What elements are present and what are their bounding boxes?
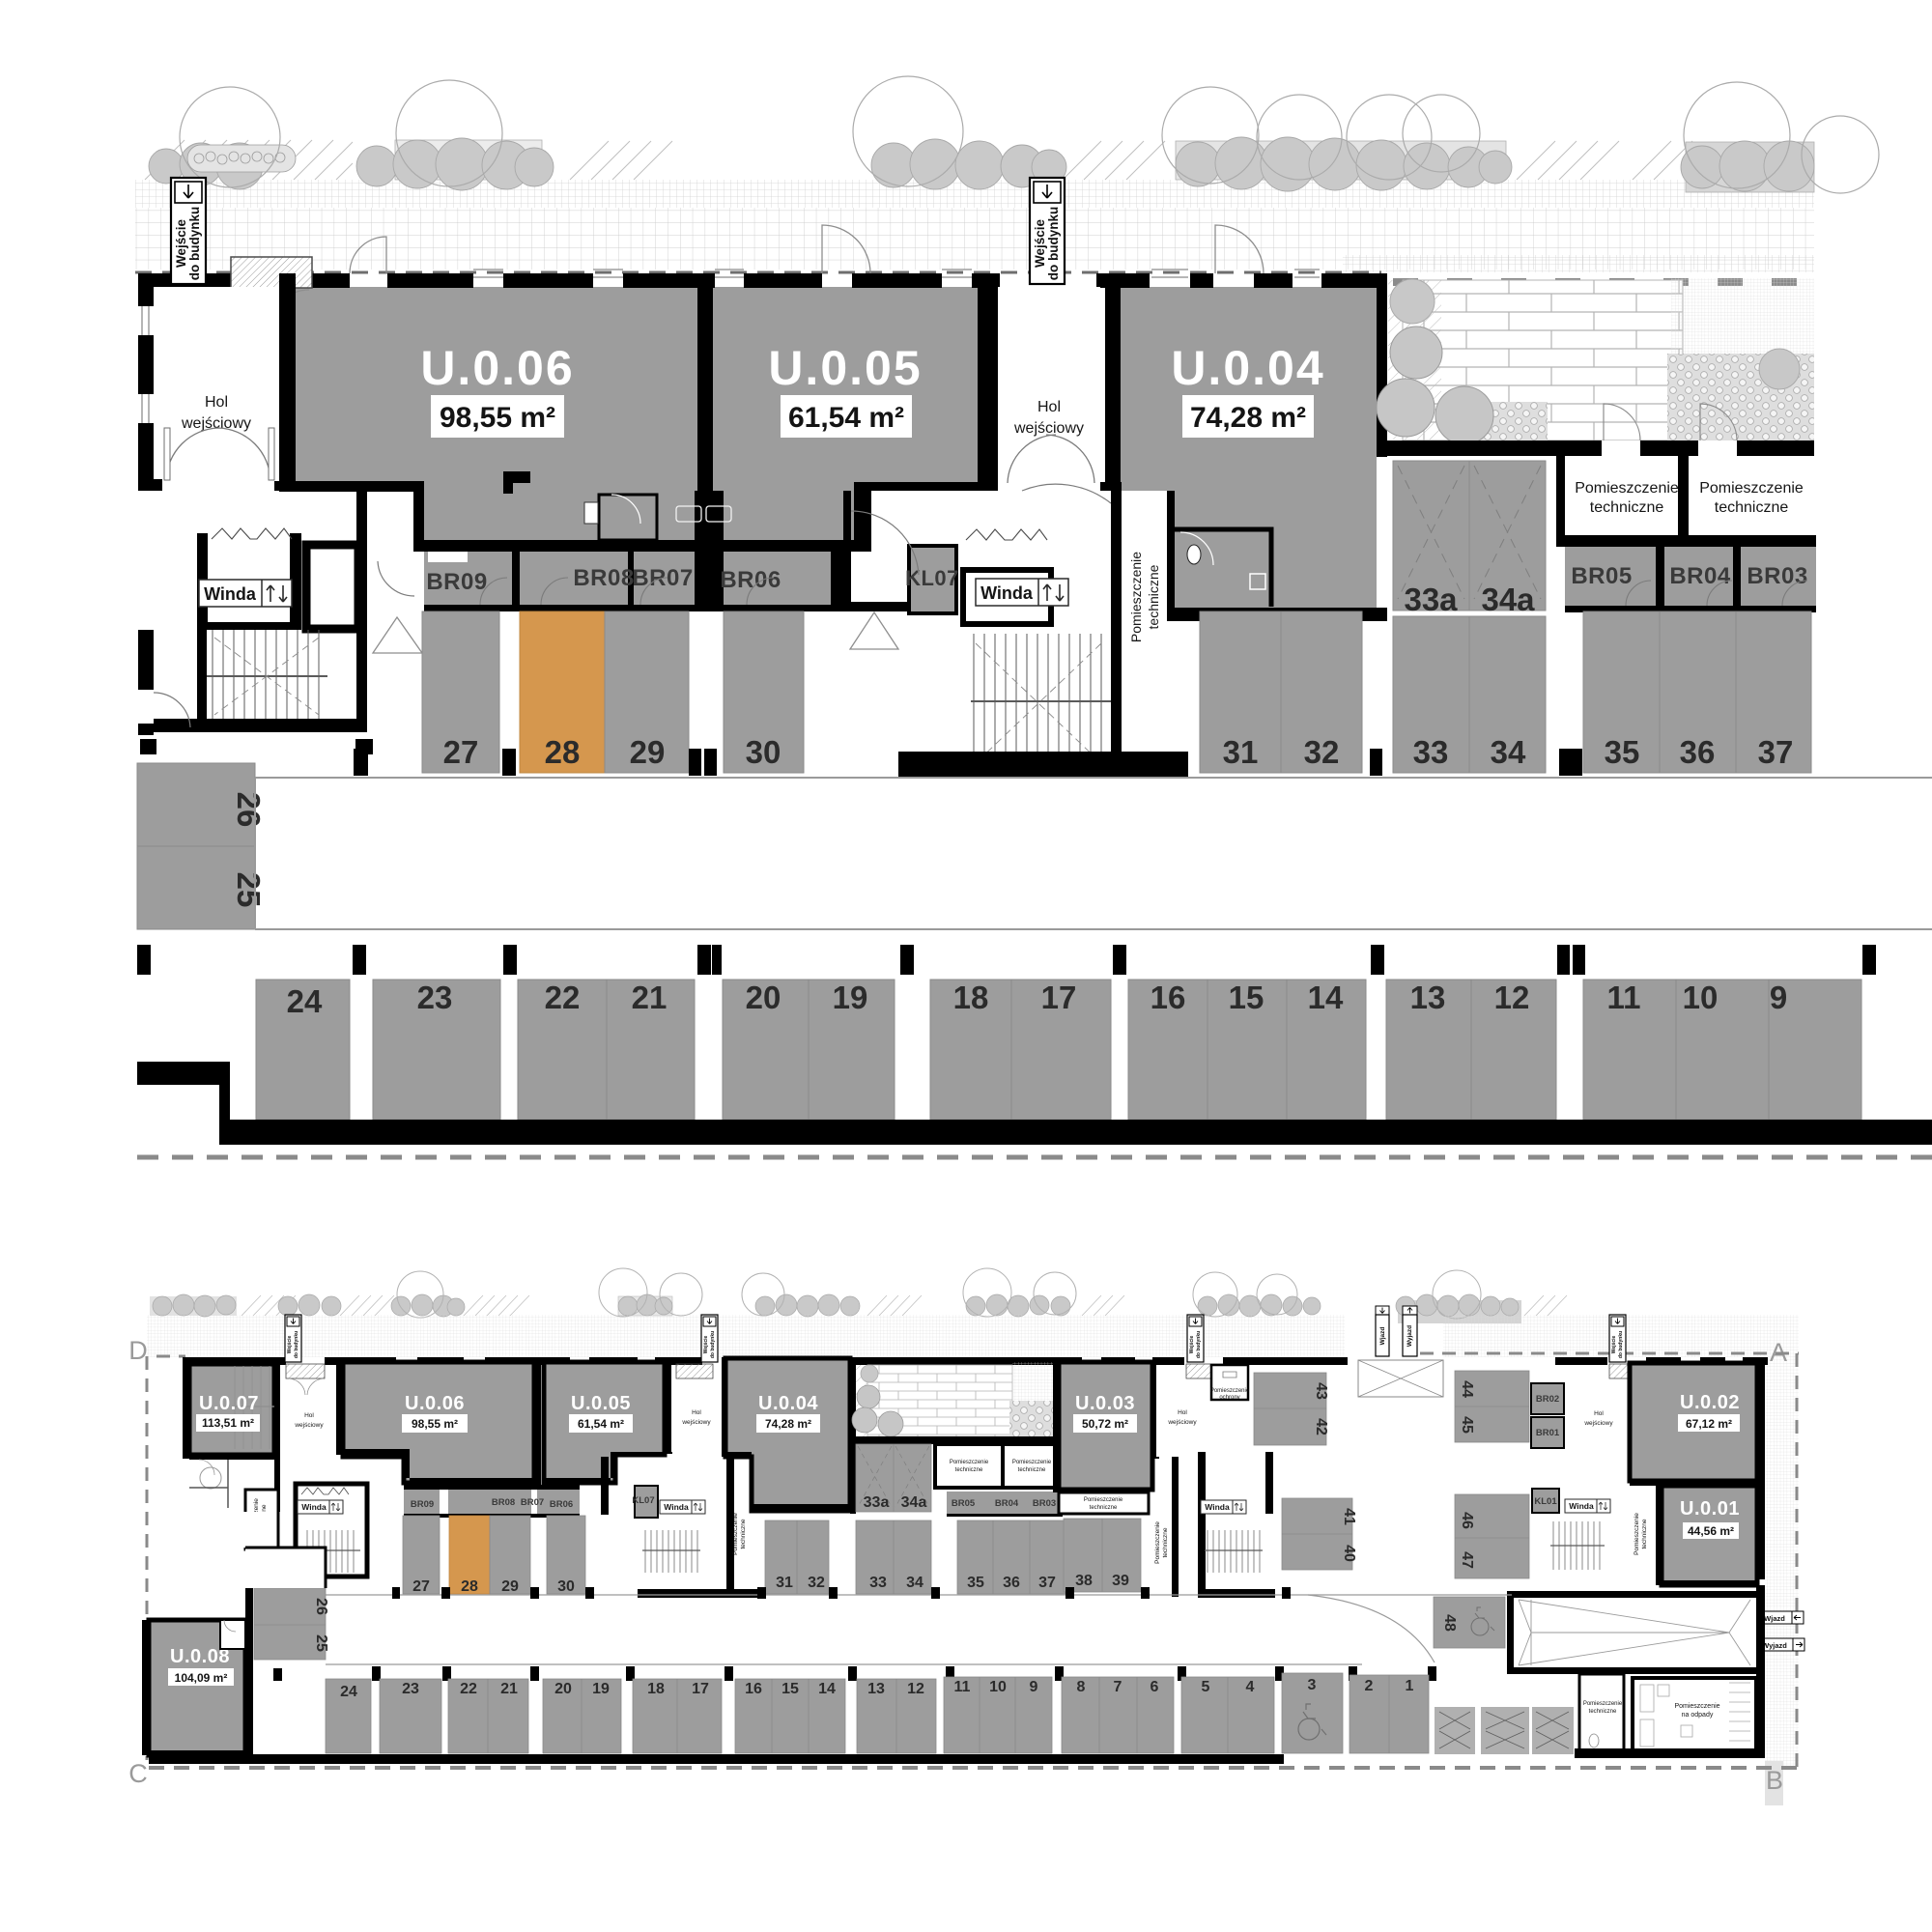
svg-text:43: 43 bbox=[1313, 1382, 1329, 1400]
svg-text:Wyjazd: Wyjazd bbox=[1406, 1325, 1413, 1347]
svg-text:22: 22 bbox=[460, 1681, 477, 1697]
svg-text:32: 32 bbox=[1304, 734, 1340, 770]
svg-text:Hol: Hol bbox=[1594, 1410, 1604, 1417]
svg-text:25: 25 bbox=[313, 1634, 329, 1652]
svg-text:BR01: BR01 bbox=[1536, 1428, 1560, 1438]
svg-text:28: 28 bbox=[461, 1578, 478, 1595]
svg-text:U.0.01: U.0.01 bbox=[1680, 1498, 1740, 1520]
svg-text:Pomieszczenie: Pomieszczenie bbox=[1210, 1388, 1250, 1394]
svg-text:Pomieszczenie: Pomieszczenie bbox=[1634, 1513, 1640, 1555]
svg-text:5: 5 bbox=[1202, 1679, 1210, 1695]
svg-text:16: 16 bbox=[1151, 980, 1186, 1015]
svg-text:33: 33 bbox=[1413, 734, 1449, 770]
svg-text:Winda: Winda bbox=[1205, 1502, 1230, 1512]
svg-text:38: 38 bbox=[1075, 1573, 1093, 1589]
svg-text:11: 11 bbox=[954, 1679, 971, 1695]
svg-text:wejściowy: wejściowy bbox=[1013, 420, 1084, 437]
svg-text:Wejście: Wejście bbox=[1033, 218, 1047, 268]
svg-text:74,28 m²: 74,28 m² bbox=[1190, 402, 1306, 434]
svg-text:14: 14 bbox=[818, 1681, 836, 1697]
svg-text:techniczne: techniczne bbox=[1146, 564, 1161, 629]
svg-text:61,54 m²: 61,54 m² bbox=[788, 402, 904, 434]
svg-text:27: 27 bbox=[443, 734, 479, 770]
svg-text:26: 26 bbox=[313, 1598, 329, 1615]
svg-text:34: 34 bbox=[1491, 734, 1526, 770]
svg-text:30: 30 bbox=[557, 1578, 575, 1595]
svg-text:techniczne: techniczne bbox=[740, 1519, 747, 1548]
svg-text:Winda: Winda bbox=[1569, 1501, 1594, 1511]
svg-text:BR04: BR04 bbox=[995, 1498, 1019, 1509]
svg-text:20: 20 bbox=[746, 980, 781, 1015]
svg-text:36: 36 bbox=[1680, 734, 1716, 770]
svg-text:wejściowy: wejściowy bbox=[681, 1419, 711, 1426]
svg-text:29: 29 bbox=[630, 734, 666, 770]
svg-text:Pomieszczenie: Pomieszczenie bbox=[732, 1513, 739, 1555]
svg-text:Hol: Hol bbox=[692, 1409, 701, 1416]
svg-text:BR08: BR08 bbox=[573, 565, 634, 591]
svg-text:Winda: Winda bbox=[204, 584, 257, 604]
svg-text:Wejście: Wejście bbox=[1611, 1336, 1617, 1354]
svg-text:Wejście: Wejście bbox=[1189, 1336, 1195, 1354]
svg-text:18: 18 bbox=[953, 980, 989, 1015]
svg-text:Pomieszczenie: Pomieszczenie bbox=[1674, 1703, 1719, 1710]
svg-text:113,51 m²: 113,51 m² bbox=[202, 1416, 254, 1430]
svg-text:35: 35 bbox=[967, 1575, 984, 1591]
svg-text:14: 14 bbox=[1308, 980, 1344, 1015]
svg-text:BR06: BR06 bbox=[550, 1499, 573, 1510]
svg-text:24: 24 bbox=[287, 983, 323, 1019]
svg-text:19: 19 bbox=[833, 980, 868, 1015]
svg-text:na odpady: na odpady bbox=[1682, 1712, 1714, 1719]
svg-text:26: 26 bbox=[231, 792, 267, 828]
svg-text:KL01: KL01 bbox=[1534, 1496, 1557, 1507]
svg-text:techniczne: techniczne bbox=[1162, 1527, 1169, 1557]
svg-text:Hol: Hol bbox=[304, 1412, 314, 1419]
svg-text:Wejście: Wejście bbox=[703, 1336, 709, 1354]
svg-text:Hol: Hol bbox=[1178, 1409, 1187, 1416]
svg-text:U.0.07: U.0.07 bbox=[199, 1393, 259, 1414]
svg-text:BR08: BR08 bbox=[492, 1497, 515, 1508]
svg-text:Hol: Hol bbox=[205, 394, 228, 411]
svg-text:Wjazd: Wjazd bbox=[1764, 1614, 1785, 1623]
svg-text:U.0.05: U.0.05 bbox=[768, 341, 922, 395]
svg-text:32: 32 bbox=[808, 1575, 825, 1591]
svg-text:Pomieszczenie: Pomieszczenie bbox=[1084, 1497, 1123, 1503]
svg-text:do budynku: do budynku bbox=[294, 1331, 299, 1358]
svg-text:wejściowy: wejściowy bbox=[1167, 1419, 1197, 1426]
svg-text:9: 9 bbox=[1030, 1679, 1038, 1695]
svg-text:13: 13 bbox=[867, 1681, 885, 1697]
svg-text:BR03: BR03 bbox=[1747, 563, 1807, 589]
svg-text:15: 15 bbox=[781, 1681, 799, 1697]
svg-text:30: 30 bbox=[746, 734, 781, 770]
svg-text:9: 9 bbox=[1770, 980, 1787, 1015]
svg-text:44,56 m²: 44,56 m² bbox=[1688, 1524, 1734, 1538]
svg-text:19: 19 bbox=[592, 1681, 610, 1697]
svg-text:29: 29 bbox=[501, 1578, 519, 1595]
svg-text:3: 3 bbox=[1308, 1677, 1317, 1693]
svg-text:35: 35 bbox=[1605, 734, 1640, 770]
svg-text:21: 21 bbox=[500, 1681, 518, 1697]
svg-text:36: 36 bbox=[1003, 1575, 1020, 1591]
svg-text:61,54 m²: 61,54 m² bbox=[578, 1417, 624, 1431]
svg-text:Winda: Winda bbox=[301, 1502, 327, 1512]
svg-text:45: 45 bbox=[1459, 1416, 1475, 1434]
svg-text:Wjazd: Wjazd bbox=[1379, 1327, 1386, 1346]
svg-text:22: 22 bbox=[545, 980, 581, 1015]
svg-text:13: 13 bbox=[1410, 980, 1446, 1015]
svg-text:do budynku: do budynku bbox=[1618, 1331, 1624, 1358]
svg-text:Pomieszczenie: Pomieszczenie bbox=[950, 1460, 989, 1465]
svg-text:41: 41 bbox=[1341, 1508, 1357, 1525]
svg-text:Winda: Winda bbox=[980, 583, 1034, 603]
svg-text:24: 24 bbox=[340, 1684, 357, 1700]
svg-text:BR09: BR09 bbox=[426, 569, 487, 595]
svg-text:27: 27 bbox=[412, 1578, 430, 1595]
svg-text:BR07: BR07 bbox=[521, 1497, 544, 1508]
svg-text:U.0.06: U.0.06 bbox=[405, 1393, 465, 1414]
svg-text:U.0.04: U.0.04 bbox=[1171, 341, 1324, 395]
svg-text:Hol: Hol bbox=[1037, 399, 1061, 415]
svg-text:BR05: BR05 bbox=[1571, 563, 1632, 589]
svg-text:4: 4 bbox=[1246, 1679, 1255, 1695]
svg-text:techniczne: techniczne bbox=[1641, 1519, 1648, 1548]
svg-text:Wejście: Wejście bbox=[287, 1336, 293, 1354]
svg-text:C: C bbox=[128, 1759, 148, 1788]
svg-text:Winda: Winda bbox=[664, 1502, 689, 1512]
svg-text:U.0.03: U.0.03 bbox=[1075, 1393, 1135, 1414]
svg-text:11: 11 bbox=[1607, 980, 1641, 1015]
svg-text:18: 18 bbox=[647, 1681, 665, 1697]
svg-text:15: 15 bbox=[1229, 980, 1264, 1015]
svg-text:33a: 33a bbox=[1404, 582, 1458, 617]
svg-text:techniczne: techniczne bbox=[1715, 499, 1789, 516]
svg-text:U.0.06: U.0.06 bbox=[420, 341, 574, 395]
svg-text:12: 12 bbox=[907, 1681, 924, 1697]
svg-text:23: 23 bbox=[402, 1681, 419, 1697]
svg-text:techniczne: techniczne bbox=[1590, 499, 1664, 516]
svg-text:KL07: KL07 bbox=[632, 1495, 654, 1506]
svg-text:40: 40 bbox=[1341, 1545, 1357, 1562]
svg-text:do budynku: do budynku bbox=[1046, 207, 1061, 281]
svg-text:U.0.02: U.0.02 bbox=[1680, 1392, 1740, 1413]
svg-text:31: 31 bbox=[1223, 734, 1259, 770]
svg-text:BR04: BR04 bbox=[1669, 563, 1731, 589]
svg-text:Pomieszczenie: Pomieszczenie bbox=[1012, 1460, 1052, 1465]
svg-text:Wejście: Wejście bbox=[174, 218, 188, 268]
svg-text:98,55 m²: 98,55 m² bbox=[412, 1417, 458, 1431]
svg-text:12: 12 bbox=[1494, 980, 1530, 1015]
svg-text:21: 21 bbox=[632, 980, 668, 1015]
svg-text:techniczne: techniczne bbox=[1090, 1505, 1118, 1511]
svg-text:BR09: BR09 bbox=[411, 1499, 434, 1510]
svg-text:46: 46 bbox=[1459, 1512, 1475, 1529]
svg-text:D: D bbox=[128, 1336, 148, 1365]
svg-text:16: 16 bbox=[745, 1681, 762, 1697]
svg-text:Wyjazd: Wyjazd bbox=[1762, 1641, 1787, 1650]
svg-text:104,09 m²: 104,09 m² bbox=[175, 1671, 228, 1685]
svg-text:do budynku: do budynku bbox=[710, 1331, 716, 1358]
svg-text:8: 8 bbox=[1077, 1679, 1086, 1695]
svg-text:BR06: BR06 bbox=[720, 567, 781, 593]
svg-text:do budynku: do budynku bbox=[1196, 1331, 1202, 1358]
svg-text:10: 10 bbox=[1683, 980, 1719, 1015]
svg-text:48: 48 bbox=[1441, 1614, 1458, 1632]
svg-text:wejściowy: wejściowy bbox=[294, 1422, 324, 1429]
svg-text:37: 37 bbox=[1758, 734, 1794, 770]
svg-text:U.0.04: U.0.04 bbox=[758, 1393, 818, 1414]
svg-text:42: 42 bbox=[1313, 1418, 1329, 1435]
svg-text:U.0.05: U.0.05 bbox=[571, 1393, 631, 1414]
svg-text:Pomieszczenie: Pomieszczenie bbox=[1575, 480, 1679, 497]
svg-text:67,12 m²: 67,12 m² bbox=[1686, 1417, 1732, 1431]
svg-text:techniczne: techniczne bbox=[955, 1467, 983, 1473]
svg-text:BR03: BR03 bbox=[1033, 1498, 1056, 1509]
svg-text:techniczne: techniczne bbox=[1589, 1709, 1617, 1715]
svg-text:KL07: KL07 bbox=[905, 566, 959, 590]
svg-text:1: 1 bbox=[1406, 1678, 1414, 1694]
svg-text:47: 47 bbox=[1459, 1551, 1475, 1569]
svg-text:10: 10 bbox=[989, 1679, 1007, 1695]
svg-text:BR02: BR02 bbox=[1536, 1394, 1559, 1405]
svg-text:74,28 m²: 74,28 m² bbox=[765, 1417, 811, 1431]
svg-text:7: 7 bbox=[1114, 1679, 1122, 1695]
svg-text:wejściowy: wejściowy bbox=[181, 415, 251, 432]
svg-text:6: 6 bbox=[1151, 1679, 1159, 1695]
svg-text:Pomieszczenie: Pomieszczenie bbox=[1699, 480, 1804, 497]
svg-text:98,55 m²: 98,55 m² bbox=[440, 402, 555, 434]
svg-text:techniczne: techniczne bbox=[1018, 1467, 1046, 1473]
svg-text:2: 2 bbox=[1365, 1678, 1374, 1694]
svg-text:do budynku: do budynku bbox=[187, 207, 202, 281]
svg-text:50,72 m²: 50,72 m² bbox=[1082, 1417, 1128, 1431]
svg-text:34: 34 bbox=[906, 1575, 923, 1591]
svg-text:ochrony: ochrony bbox=[1219, 1395, 1239, 1401]
svg-text:Pomieszczenie: Pomieszczenie bbox=[1583, 1701, 1623, 1707]
svg-text:23: 23 bbox=[417, 980, 453, 1015]
svg-text:39: 39 bbox=[1112, 1573, 1129, 1589]
svg-text:31: 31 bbox=[776, 1575, 793, 1591]
svg-text:17: 17 bbox=[1041, 980, 1077, 1015]
svg-text:25: 25 bbox=[231, 872, 267, 908]
svg-text:20: 20 bbox=[554, 1681, 572, 1697]
svg-text:34a: 34a bbox=[1481, 582, 1535, 617]
svg-text:28: 28 bbox=[545, 734, 581, 770]
svg-text:B: B bbox=[1766, 1766, 1783, 1795]
svg-text:17: 17 bbox=[692, 1681, 709, 1697]
svg-text:37: 37 bbox=[1038, 1575, 1056, 1591]
svg-text:34a: 34a bbox=[901, 1494, 927, 1511]
svg-text:44: 44 bbox=[1459, 1380, 1475, 1398]
svg-text:Pomieszczenie: Pomieszczenie bbox=[1128, 552, 1144, 642]
svg-text:Pomieszczenie: Pomieszczenie bbox=[1154, 1521, 1161, 1564]
svg-text:BR05: BR05 bbox=[952, 1498, 976, 1509]
svg-text:33: 33 bbox=[869, 1575, 887, 1591]
svg-text:33a: 33a bbox=[864, 1494, 890, 1511]
svg-text:wejściowy: wejściowy bbox=[1583, 1420, 1613, 1427]
